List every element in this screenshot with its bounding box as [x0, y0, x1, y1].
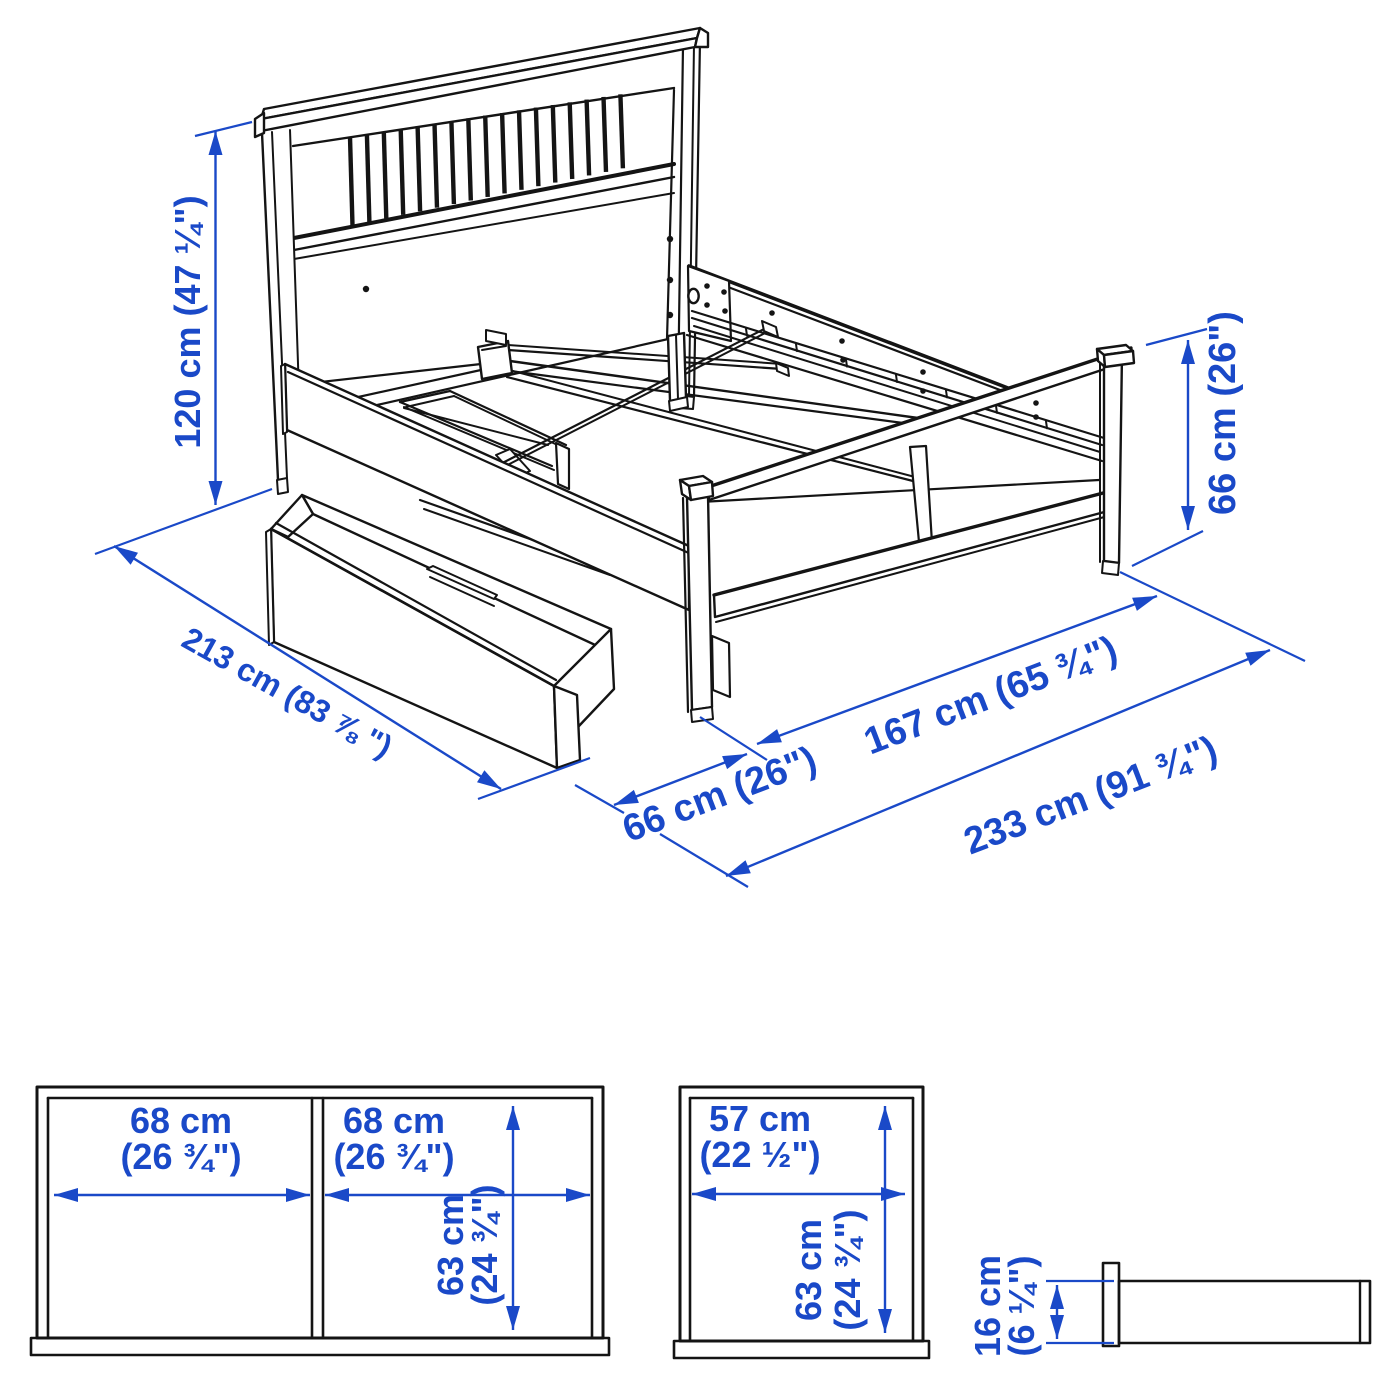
svg-text:68 cm: 68 cm — [130, 1100, 232, 1141]
svg-text:63 cm: 63 cm — [788, 1219, 829, 1321]
svg-text:57 cm: 57 cm — [709, 1098, 811, 1139]
svg-text:120 cm (47 ¼"): 120 cm (47 ¼") — [167, 195, 208, 448]
svg-text:(24 ¾"): (24 ¾") — [827, 1209, 868, 1330]
svg-text:(26 ¾"): (26 ¾") — [333, 1136, 454, 1177]
svg-text:(26 ¾"): (26 ¾") — [120, 1136, 241, 1177]
svg-text:(22 ½"): (22 ½") — [699, 1134, 820, 1175]
svg-text:(24 ¾"): (24 ¾") — [464, 1184, 505, 1305]
svg-text:(6 ¼"): (6 ¼") — [1001, 1255, 1042, 1356]
svg-text:66 cm (26"): 66 cm (26") — [1202, 311, 1244, 515]
svg-text:68 cm: 68 cm — [343, 1100, 445, 1141]
